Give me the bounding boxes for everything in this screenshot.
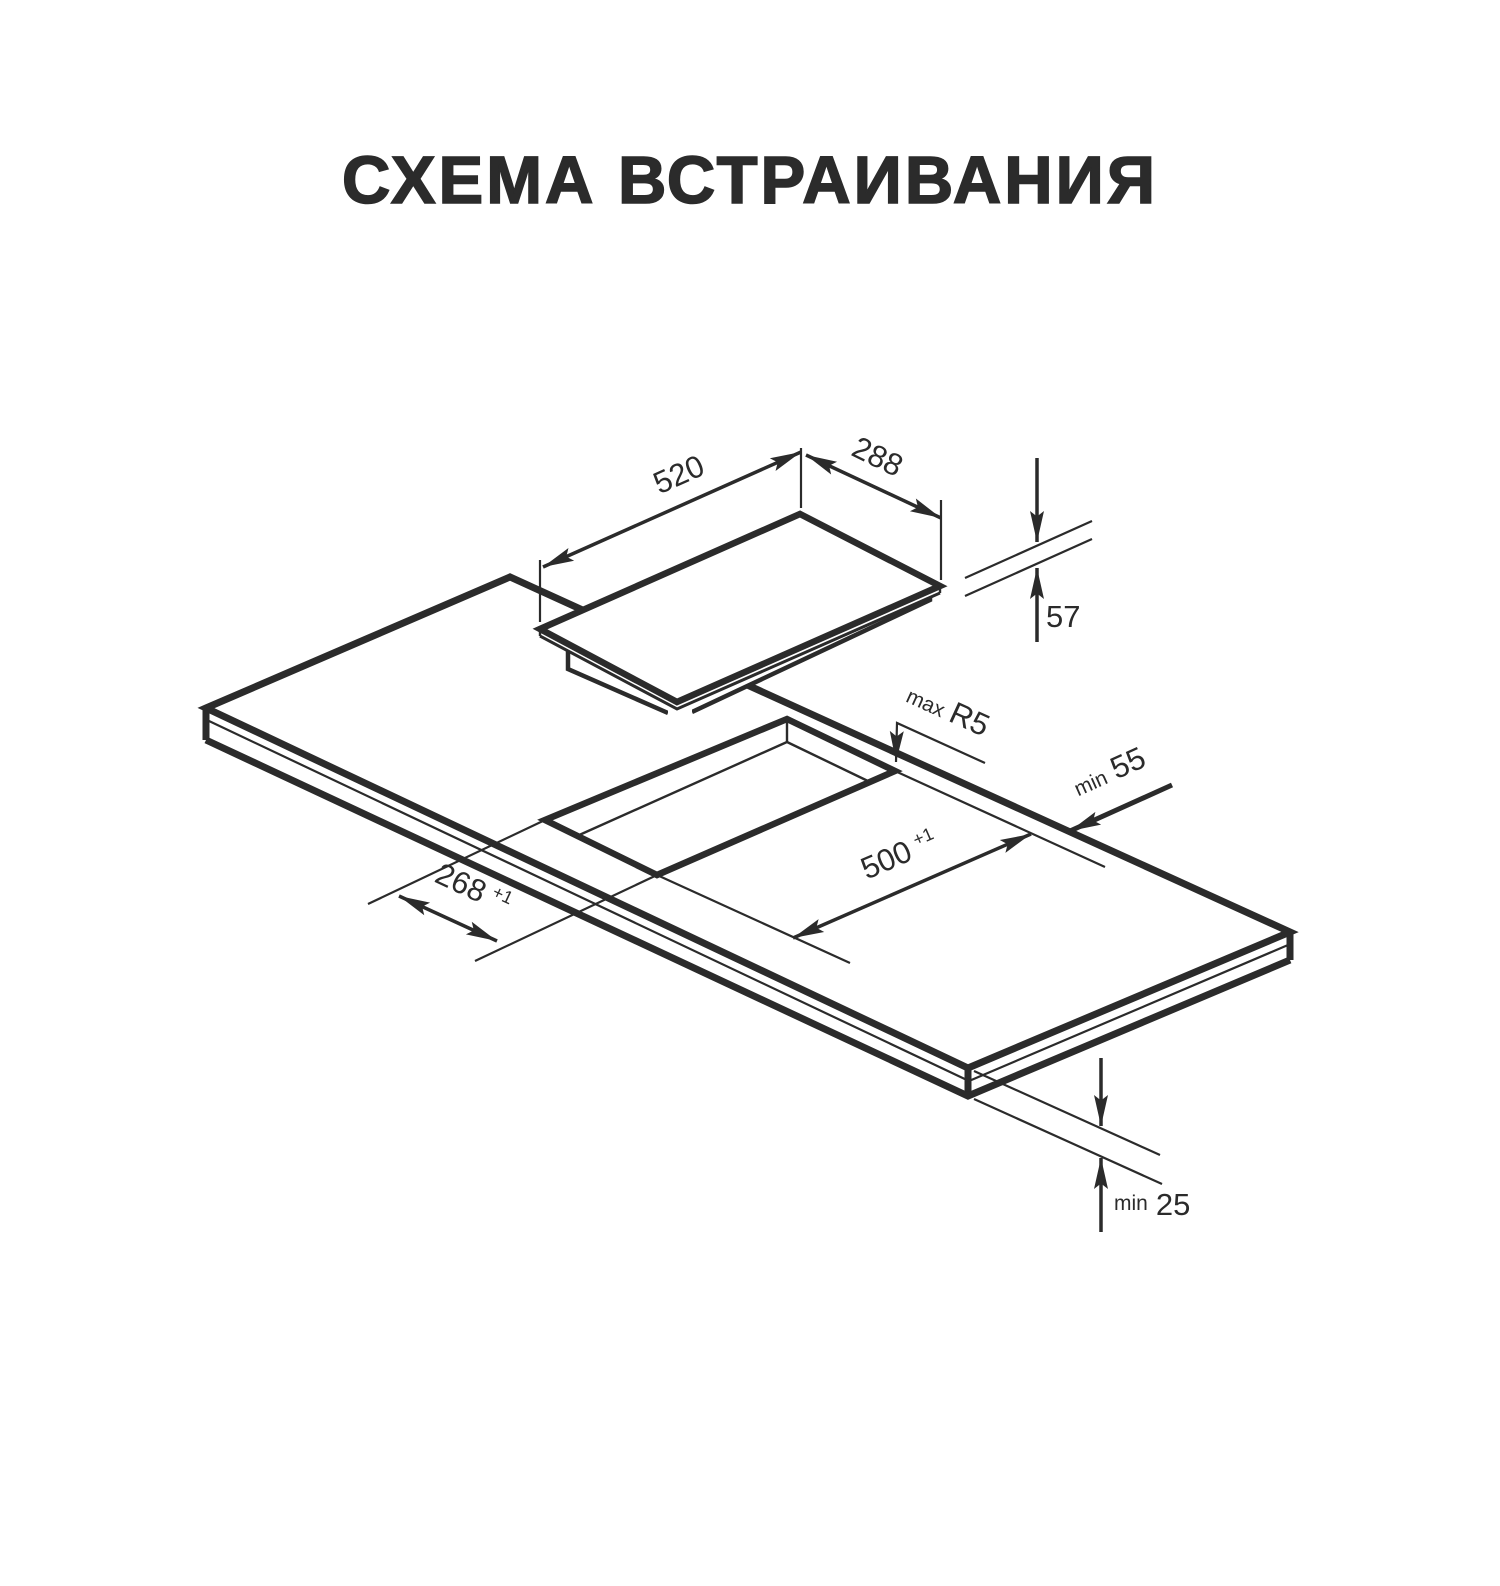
dim-57-extension-lines	[965, 521, 1092, 596]
dimension-hob-height: 57	[965, 458, 1092, 642]
installation-diagram: СХЕМА ВСТРАИВАНИЯ 520	[0, 0, 1500, 1586]
dim-r5-label: maxR5	[902, 676, 995, 744]
dimension-corner-radius: maxR5	[896, 676, 995, 763]
dimension-back-clearance: min55	[1067, 740, 1172, 831]
dim-57-label: 57	[1046, 599, 1080, 634]
dimension-bottom-clearance: min25	[974, 1058, 1190, 1232]
dim-288-label: 288	[847, 429, 909, 483]
dim-min55-label: min55	[1067, 740, 1151, 803]
dim-min25-extension-lines	[974, 1071, 1162, 1184]
page-title: СХЕМА ВСТРАИВАНИЯ	[342, 143, 1158, 218]
dim-268-line	[399, 896, 497, 941]
dim-min25-label: min25	[1114, 1187, 1190, 1222]
installation-diagram-page: СХЕМА ВСТРАИВАНИЯ 520	[0, 0, 1500, 1586]
dim-520-label: 520	[648, 448, 709, 501]
